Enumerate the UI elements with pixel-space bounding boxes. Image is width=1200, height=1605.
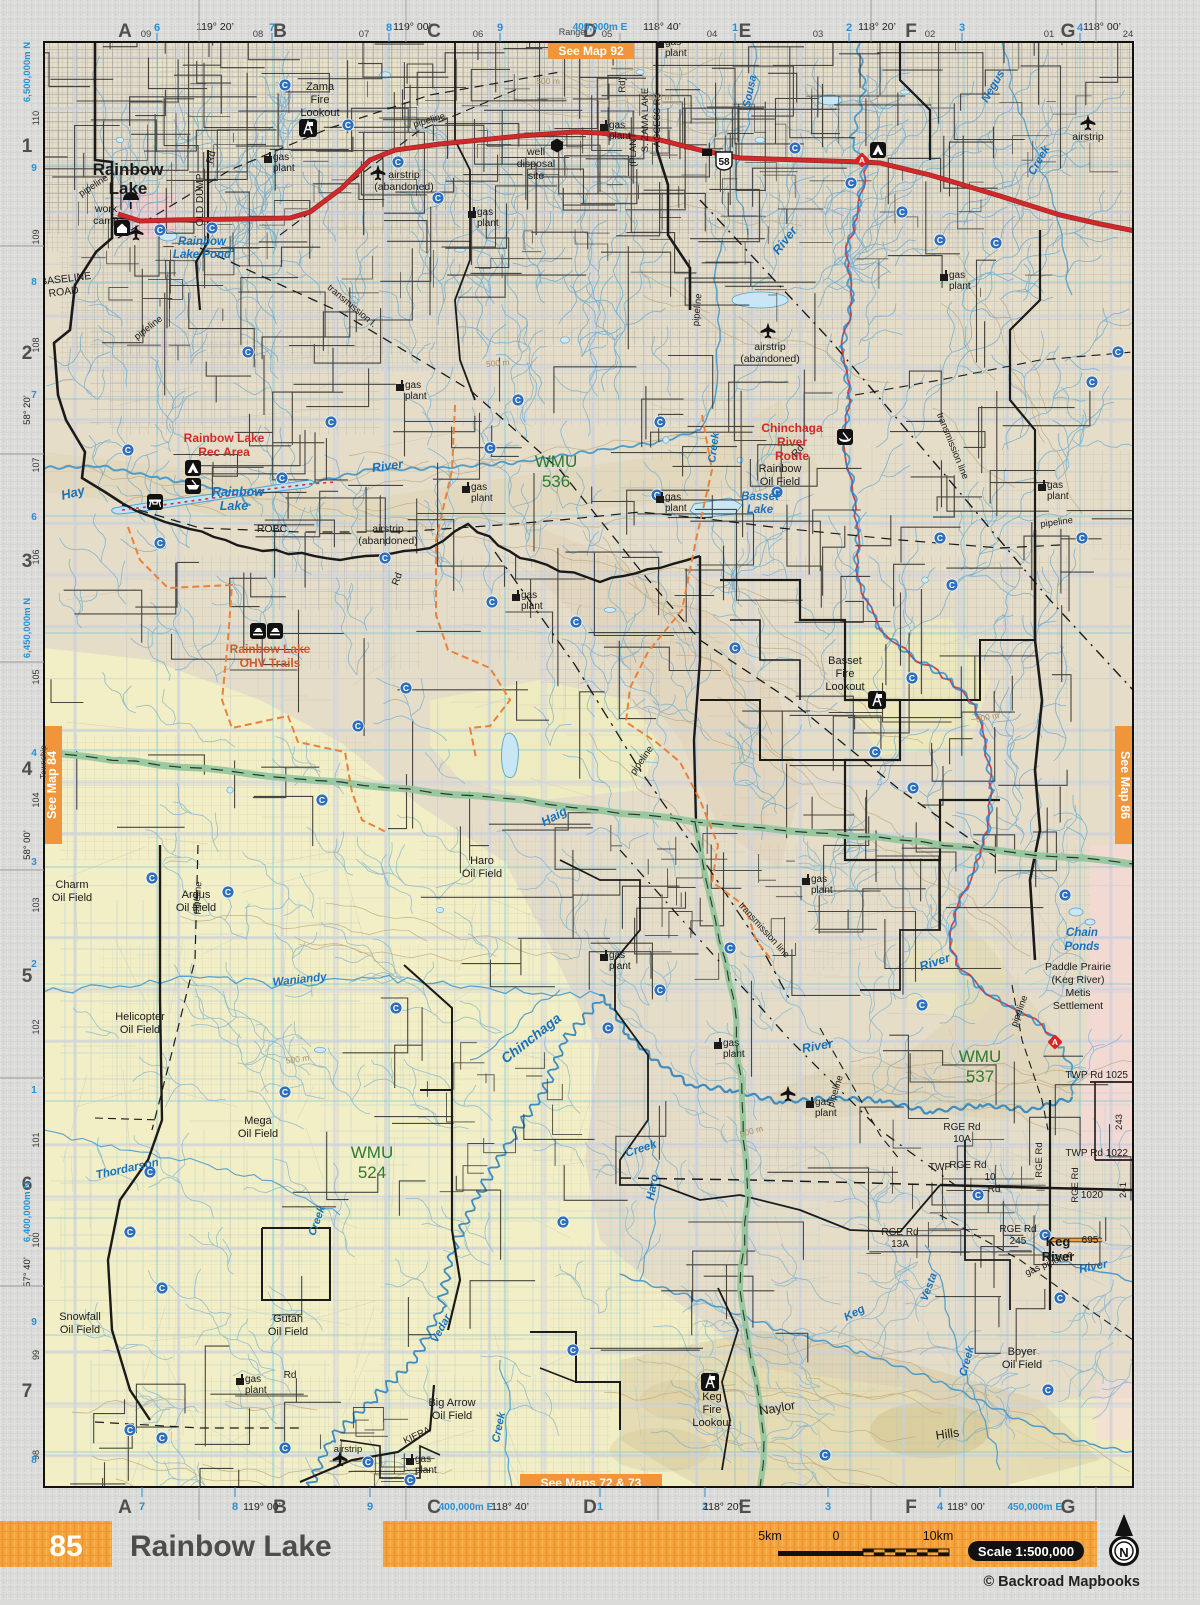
svg-text:Lookout: Lookout — [300, 107, 339, 119]
svg-text:Keg: Keg — [1046, 1234, 1071, 1249]
svg-text:C: C — [573, 617, 579, 627]
svg-text:gas: gas — [949, 270, 965, 281]
svg-text:gas: gas — [1047, 480, 1063, 491]
svg-text:8: 8 — [31, 277, 37, 288]
svg-text:F: F — [905, 1497, 917, 1518]
svg-text:airstrip: airstrip — [372, 523, 404, 535]
svg-text:TWP Rd 1025: TWP Rd 1025 — [1065, 1070, 1128, 1081]
svg-text:RGE Rd: RGE Rd — [999, 1224, 1036, 1235]
svg-text:gas: gas — [609, 120, 625, 131]
svg-text:6: 6 — [31, 512, 37, 523]
svg-text:4: 4 — [22, 759, 33, 780]
svg-text:© Backroad Mapbooks: © Backroad Mapbooks — [983, 1574, 1140, 1590]
svg-text:536: 536 — [542, 472, 570, 491]
svg-text:ROBC: ROBC — [257, 523, 288, 535]
svg-text:3: 3 — [959, 22, 965, 34]
svg-text:See Map 92: See Map 92 — [558, 44, 624, 58]
svg-text:6,400,000m N: 6,400,000m N — [22, 1182, 33, 1242]
svg-text:7: 7 — [269, 22, 275, 34]
svg-text:C: C — [159, 1433, 165, 1443]
svg-text:Oil Field: Oil Field — [432, 1410, 472, 1422]
svg-text:C: C — [899, 207, 905, 217]
svg-text:gas: gas — [665, 492, 681, 503]
svg-text:plant: plant — [1047, 491, 1069, 502]
svg-text:gas: gas — [471, 482, 487, 493]
svg-text:243: 243 — [1114, 1114, 1125, 1130]
svg-text:5km: 5km — [758, 1529, 782, 1543]
svg-text:4: 4 — [937, 1501, 944, 1513]
svg-text:03: 03 — [813, 29, 824, 40]
svg-text:A: A — [118, 21, 132, 42]
svg-text:C: C — [328, 417, 334, 427]
svg-text:C: C — [727, 943, 733, 953]
svg-text:9: 9 — [31, 163, 37, 174]
svg-text:10km: 10km — [923, 1529, 954, 1543]
svg-text:Basset: Basset — [828, 655, 862, 667]
svg-text:01: 01 — [1044, 29, 1055, 40]
svg-text:Fire: Fire — [703, 1404, 722, 1416]
svg-text:C: C — [515, 395, 521, 405]
svg-text:C: C — [245, 347, 251, 357]
svg-text:500 m: 500 m — [486, 357, 510, 369]
svg-text:C: C — [937, 533, 943, 543]
svg-text:airstrip: airstrip — [754, 341, 786, 353]
svg-text:gas: gas — [609, 950, 625, 961]
svg-text:C: C — [657, 985, 663, 995]
svg-text:Oil Field: Oil Field — [238, 1128, 278, 1140]
svg-text:River: River — [1042, 1249, 1075, 1264]
svg-text:(abandoned): (abandoned) — [374, 181, 434, 193]
svg-text:Rec Area: Rec Area — [198, 445, 250, 459]
svg-text:gas: gas — [477, 207, 493, 218]
svg-text:7: 7 — [139, 1501, 145, 1513]
svg-text:C: C — [355, 721, 361, 731]
svg-text:Oil Field: Oil Field — [120, 1024, 160, 1036]
svg-text:245: 245 — [1010, 1236, 1027, 1247]
svg-text:8: 8 — [232, 1501, 238, 1513]
svg-text:plant: plant — [471, 493, 493, 504]
svg-text:119° 20’: 119° 20’ — [196, 21, 234, 33]
svg-text:airstrip: airstrip — [1072, 131, 1104, 143]
svg-text:Lake: Lake — [220, 499, 249, 513]
svg-text:13A: 13A — [891, 1239, 909, 1250]
svg-text:118° 00’: 118° 00’ — [947, 1501, 985, 1513]
svg-text:RGE Rd: RGE Rd — [1034, 1142, 1045, 1177]
svg-text:Rainbow: Rainbow — [759, 463, 802, 475]
svg-text:A: A — [118, 1497, 132, 1518]
svg-text:118° 20’: 118° 20’ — [858, 21, 896, 33]
svg-text:TWP Rd 1022: TWP Rd 1022 — [1065, 1148, 1128, 1159]
svg-text:C: C — [1057, 1293, 1063, 1303]
svg-text:C: C — [1079, 533, 1085, 543]
svg-text:Haro: Haro — [470, 855, 494, 867]
svg-text:110: 110 — [31, 111, 41, 125]
svg-text:airstrip: airstrip — [388, 169, 420, 181]
svg-text:C: C — [570, 1345, 576, 1355]
svg-text:Keg: Keg — [702, 1391, 722, 1403]
svg-text:09: 09 — [141, 29, 152, 40]
svg-text:WMU: WMU — [535, 452, 577, 471]
svg-text:119° 00’: 119° 00’ — [243, 1501, 281, 1513]
svg-text:(Keg River): (Keg River) — [1051, 974, 1104, 986]
svg-text:F: F — [905, 21, 917, 42]
svg-text:C: C — [560, 1217, 566, 1227]
svg-text:plant: plant — [665, 48, 687, 59]
svg-text:C: C — [489, 597, 495, 607]
svg-text:9: 9 — [31, 1317, 37, 1328]
svg-text:plant: plant — [415, 1465, 437, 1476]
svg-text:109: 109 — [31, 229, 41, 244]
svg-text:2: 2 — [31, 959, 37, 970]
svg-text:N: N — [1119, 1545, 1128, 1560]
svg-text:plant: plant — [665, 503, 687, 514]
svg-text:1: 1 — [31, 1085, 37, 1096]
svg-text:Rainbow Lake: Rainbow Lake — [130, 1530, 332, 1563]
svg-text:524: 524 — [358, 1163, 386, 1182]
svg-text:58° 00’: 58° 00’ — [22, 830, 33, 860]
svg-text:6: 6 — [154, 22, 160, 34]
svg-text:Rd: Rd — [284, 1370, 297, 1381]
svg-text:Oil Field: Oil Field — [1002, 1359, 1042, 1371]
svg-text:C: C — [872, 747, 878, 757]
svg-text:RGE Rd: RGE Rd — [881, 1227, 918, 1238]
svg-text:C: C — [127, 1425, 133, 1435]
svg-text:Chinchaga: Chinchaga — [761, 421, 823, 435]
svg-text:106: 106 — [31, 549, 41, 564]
svg-text:Mega: Mega — [244, 1115, 272, 1127]
svg-text:9: 9 — [367, 1501, 373, 1513]
svg-text:10A: 10A — [953, 1134, 971, 1145]
svg-text:plant: plant — [815, 1108, 837, 1119]
svg-text:Fire: Fire — [836, 668, 855, 680]
svg-text:plant: plant — [245, 1385, 267, 1396]
svg-text:(abandoned): (abandoned) — [358, 535, 418, 547]
svg-text:(PLANT: (PLANT — [628, 133, 639, 167]
svg-text:WMU: WMU — [351, 1143, 393, 1162]
svg-text:Lake: Lake — [109, 179, 148, 198]
svg-text:6,450,000m N: 6,450,000m N — [22, 598, 33, 658]
svg-text:Oil Field: Oil Field — [176, 902, 216, 914]
svg-text:plant: plant — [405, 391, 427, 402]
svg-text:Snowfall: Snowfall — [59, 1311, 101, 1323]
svg-text:TWP: TWP — [929, 1162, 952, 1173]
svg-text:C: C — [393, 1003, 399, 1013]
svg-text:site: site — [528, 170, 545, 182]
svg-text:C: C — [209, 223, 215, 233]
svg-text:C: C — [993, 238, 999, 248]
svg-text:241: 241 — [1118, 1182, 1129, 1198]
svg-text:105: 105 — [31, 669, 41, 684]
svg-text:10: 10 — [984, 1172, 996, 1183]
svg-text:Rd: Rd — [988, 1184, 1001, 1195]
svg-text:Lookout: Lookout — [692, 1417, 731, 1429]
svg-text:G: G — [1061, 21, 1076, 42]
svg-text:C: C — [279, 473, 285, 483]
svg-text:C: C — [282, 80, 288, 90]
svg-text:04: 04 — [707, 29, 718, 40]
svg-text:400,000m E: 400,000m E — [439, 1502, 494, 1513]
svg-text:102: 102 — [31, 1019, 41, 1034]
svg-text:C: C — [282, 1087, 288, 1097]
svg-text:06: 06 — [473, 29, 484, 40]
svg-text:Rainbow Lake: Rainbow Lake — [184, 431, 265, 445]
svg-text:Oil Field: Oil Field — [268, 1326, 308, 1338]
svg-text:plant: plant — [521, 601, 543, 612]
svg-text:camp: camp — [93, 215, 119, 227]
svg-text:Oil Field: Oil Field — [462, 868, 502, 880]
svg-text:plant: plant — [723, 1049, 745, 1060]
svg-text:119° 00’: 119° 00’ — [393, 21, 431, 33]
svg-text:C: C — [975, 1190, 981, 1200]
svg-text:500 m: 500 m — [536, 76, 560, 86]
svg-text:1: 1 — [732, 22, 738, 34]
svg-text:08: 08 — [253, 29, 264, 40]
svg-text:C: C — [1115, 347, 1121, 357]
svg-text:Rainbow: Rainbow — [212, 485, 265, 499]
svg-text:3: 3 — [825, 1501, 831, 1513]
svg-text:Metis: Metis — [1065, 987, 1090, 999]
svg-text:2: 2 — [846, 22, 852, 34]
svg-text:See Map 86: See Map 86 — [1118, 751, 1132, 819]
svg-text:1: 1 — [597, 1501, 603, 1513]
svg-text:gas: gas — [811, 874, 827, 885]
svg-text:02: 02 — [925, 29, 936, 40]
svg-text:gas: gas — [245, 1374, 261, 1385]
svg-text:gas: gas — [723, 1038, 739, 1049]
svg-text:C: C — [159, 1283, 165, 1293]
svg-text:118° 40’: 118° 40’ — [491, 1501, 529, 1513]
svg-text:Fire: Fire — [311, 94, 330, 106]
svg-text:6,500,000m N: 6,500,000m N — [22, 42, 33, 102]
svg-text:well: well — [526, 146, 545, 158]
svg-text:Rainbow: Rainbow — [178, 236, 227, 248]
svg-text:Argus: Argus — [182, 889, 211, 901]
svg-text:C: C — [395, 157, 401, 167]
svg-text:A: A — [1052, 1037, 1058, 1047]
svg-text:Settlement: Settlement — [1053, 1000, 1103, 1012]
svg-text:C: C — [909, 673, 915, 683]
svg-text:1: 1 — [22, 136, 33, 157]
svg-text:Paddle Prairie: Paddle Prairie — [1045, 961, 1111, 973]
svg-text:C: C — [149, 873, 155, 883]
svg-text:Oil Field: Oil Field — [60, 1324, 100, 1336]
svg-text:7: 7 — [22, 1381, 33, 1402]
svg-text:B: B — [273, 21, 287, 42]
svg-text:107: 107 — [31, 457, 41, 472]
svg-text:C: C — [319, 795, 325, 805]
svg-text:A: A — [859, 155, 865, 165]
svg-text:E: E — [739, 21, 752, 42]
svg-text:plant: plant — [477, 218, 499, 229]
svg-text:OHV Trails: OHV Trails — [240, 656, 301, 670]
svg-text:C: C — [282, 1443, 288, 1453]
svg-text:G: G — [1061, 1497, 1076, 1518]
svg-text:0: 0 — [833, 1529, 840, 1543]
svg-text:Chain: Chain — [1066, 927, 1098, 939]
svg-text:24: 24 — [1123, 29, 1134, 40]
svg-text:99: 99 — [31, 1350, 41, 1360]
svg-text:airstrip: airstrip — [334, 1444, 363, 1455]
svg-text:C: C — [792, 143, 798, 153]
svg-text:450,000m E: 450,000m E — [1008, 1502, 1063, 1513]
svg-text:Lake Pond: Lake Pond — [173, 249, 232, 261]
svg-text:work: work — [94, 203, 118, 215]
svg-text:C: C — [848, 178, 854, 188]
svg-text:C: C — [157, 225, 163, 235]
svg-text:108: 108 — [31, 337, 41, 352]
svg-text:57° 40’: 57° 40’ — [22, 1257, 33, 1287]
svg-text:C: C — [1045, 1385, 1051, 1395]
svg-text:695: 695 — [1082, 1235, 1099, 1246]
svg-text:07: 07 — [359, 29, 370, 40]
svg-text:C: C — [1089, 377, 1095, 387]
svg-text:C: C — [365, 1457, 371, 1467]
svg-text:C: C — [822, 1450, 828, 1460]
svg-text:C: C — [605, 1023, 611, 1033]
svg-text:C: C — [435, 193, 441, 203]
svg-text:Scale 1:500,000: Scale 1:500,000 — [978, 1544, 1074, 1559]
svg-text:Zama: Zama — [306, 81, 335, 93]
svg-text:disposal: disposal — [517, 158, 556, 170]
svg-text:gas: gas — [415, 1454, 431, 1465]
svg-text:plant: plant — [811, 885, 833, 896]
svg-text:118° 40’: 118° 40’ — [643, 21, 681, 33]
svg-text:C: C — [382, 553, 388, 563]
svg-text:gas: gas — [405, 380, 421, 391]
svg-text:Lake: Lake — [747, 504, 774, 516]
svg-text:8: 8 — [386, 22, 392, 34]
svg-text:Ponds: Ponds — [1064, 941, 1099, 953]
svg-text:RGE Rd: RGE Rd — [943, 1122, 980, 1133]
svg-text:plant: plant — [949, 281, 971, 292]
svg-text:C: C — [657, 417, 663, 427]
svg-text:58° 20’: 58° 20’ — [22, 395, 33, 425]
svg-text:C: C — [1062, 890, 1068, 900]
svg-text:C: C — [127, 1227, 133, 1237]
svg-text:Boyer: Boyer — [1008, 1346, 1037, 1358]
svg-text:(abandoned): (abandoned) — [740, 353, 800, 365]
svg-text:500 m: 500 m — [648, 92, 672, 102]
svg-text:Big Arrow: Big Arrow — [428, 1397, 475, 1409]
svg-text:9: 9 — [497, 22, 503, 34]
svg-text:Basset: Basset — [741, 491, 780, 503]
svg-text:C: C — [125, 445, 131, 455]
svg-text:Oil Field: Oil Field — [52, 892, 92, 904]
svg-text:C: C — [403, 683, 409, 693]
svg-text:OLD DUMP: OLD DUMP — [195, 173, 206, 226]
svg-text:C: C — [937, 235, 943, 245]
svg-text:537: 537 — [966, 1067, 994, 1086]
svg-text:104: 104 — [31, 792, 41, 807]
svg-text:Helicopter: Helicopter — [115, 1011, 165, 1023]
svg-text:C: C — [487, 443, 493, 453]
svg-text:4: 4 — [31, 748, 37, 759]
svg-text:Rd): Rd) — [617, 77, 628, 92]
svg-text:C: C — [345, 120, 351, 130]
svg-text:Township: Township — [39, 745, 48, 779]
svg-text:C: C — [225, 887, 231, 897]
svg-text:C: C — [407, 1475, 413, 1485]
svg-text:RGE Rd: RGE Rd — [1070, 1167, 1081, 1202]
svg-text:Rainbow Lake: Rainbow Lake — [230, 642, 311, 656]
svg-text:Oil Field: Oil Field — [760, 476, 800, 488]
svg-text:WMU: WMU — [959, 1047, 1001, 1066]
svg-text:103: 103 — [31, 897, 41, 912]
svg-text:C: C — [732, 643, 738, 653]
svg-text:118° 20’: 118° 20’ — [703, 1501, 741, 1513]
svg-text:85: 85 — [49, 1530, 82, 1563]
svg-text:D: D — [583, 1497, 597, 1518]
svg-text:8: 8 — [31, 1455, 37, 1466]
svg-text:C: C — [157, 538, 163, 548]
svg-text:RGE Rd: RGE Rd — [949, 1160, 986, 1171]
svg-text:plant: plant — [609, 961, 631, 972]
svg-text:gas: gas — [273, 152, 289, 163]
svg-text:Lookout: Lookout — [825, 681, 864, 693]
svg-text:C: C — [949, 580, 955, 590]
svg-text:101: 101 — [31, 1132, 41, 1147]
svg-text:1020: 1020 — [1081, 1190, 1104, 1201]
svg-text:gas: gas — [521, 590, 537, 601]
svg-text:Gutah: Gutah — [273, 1313, 303, 1325]
svg-text:400,000m E: 400,000m E — [573, 22, 628, 33]
svg-text:C: C — [910, 783, 916, 793]
svg-text:C: C — [919, 1000, 925, 1010]
svg-text:plant: plant — [273, 163, 295, 174]
svg-text:58: 58 — [718, 157, 730, 168]
svg-text:118° 00’: 118° 00’ — [1083, 21, 1121, 33]
svg-text:Charm: Charm — [55, 879, 88, 891]
